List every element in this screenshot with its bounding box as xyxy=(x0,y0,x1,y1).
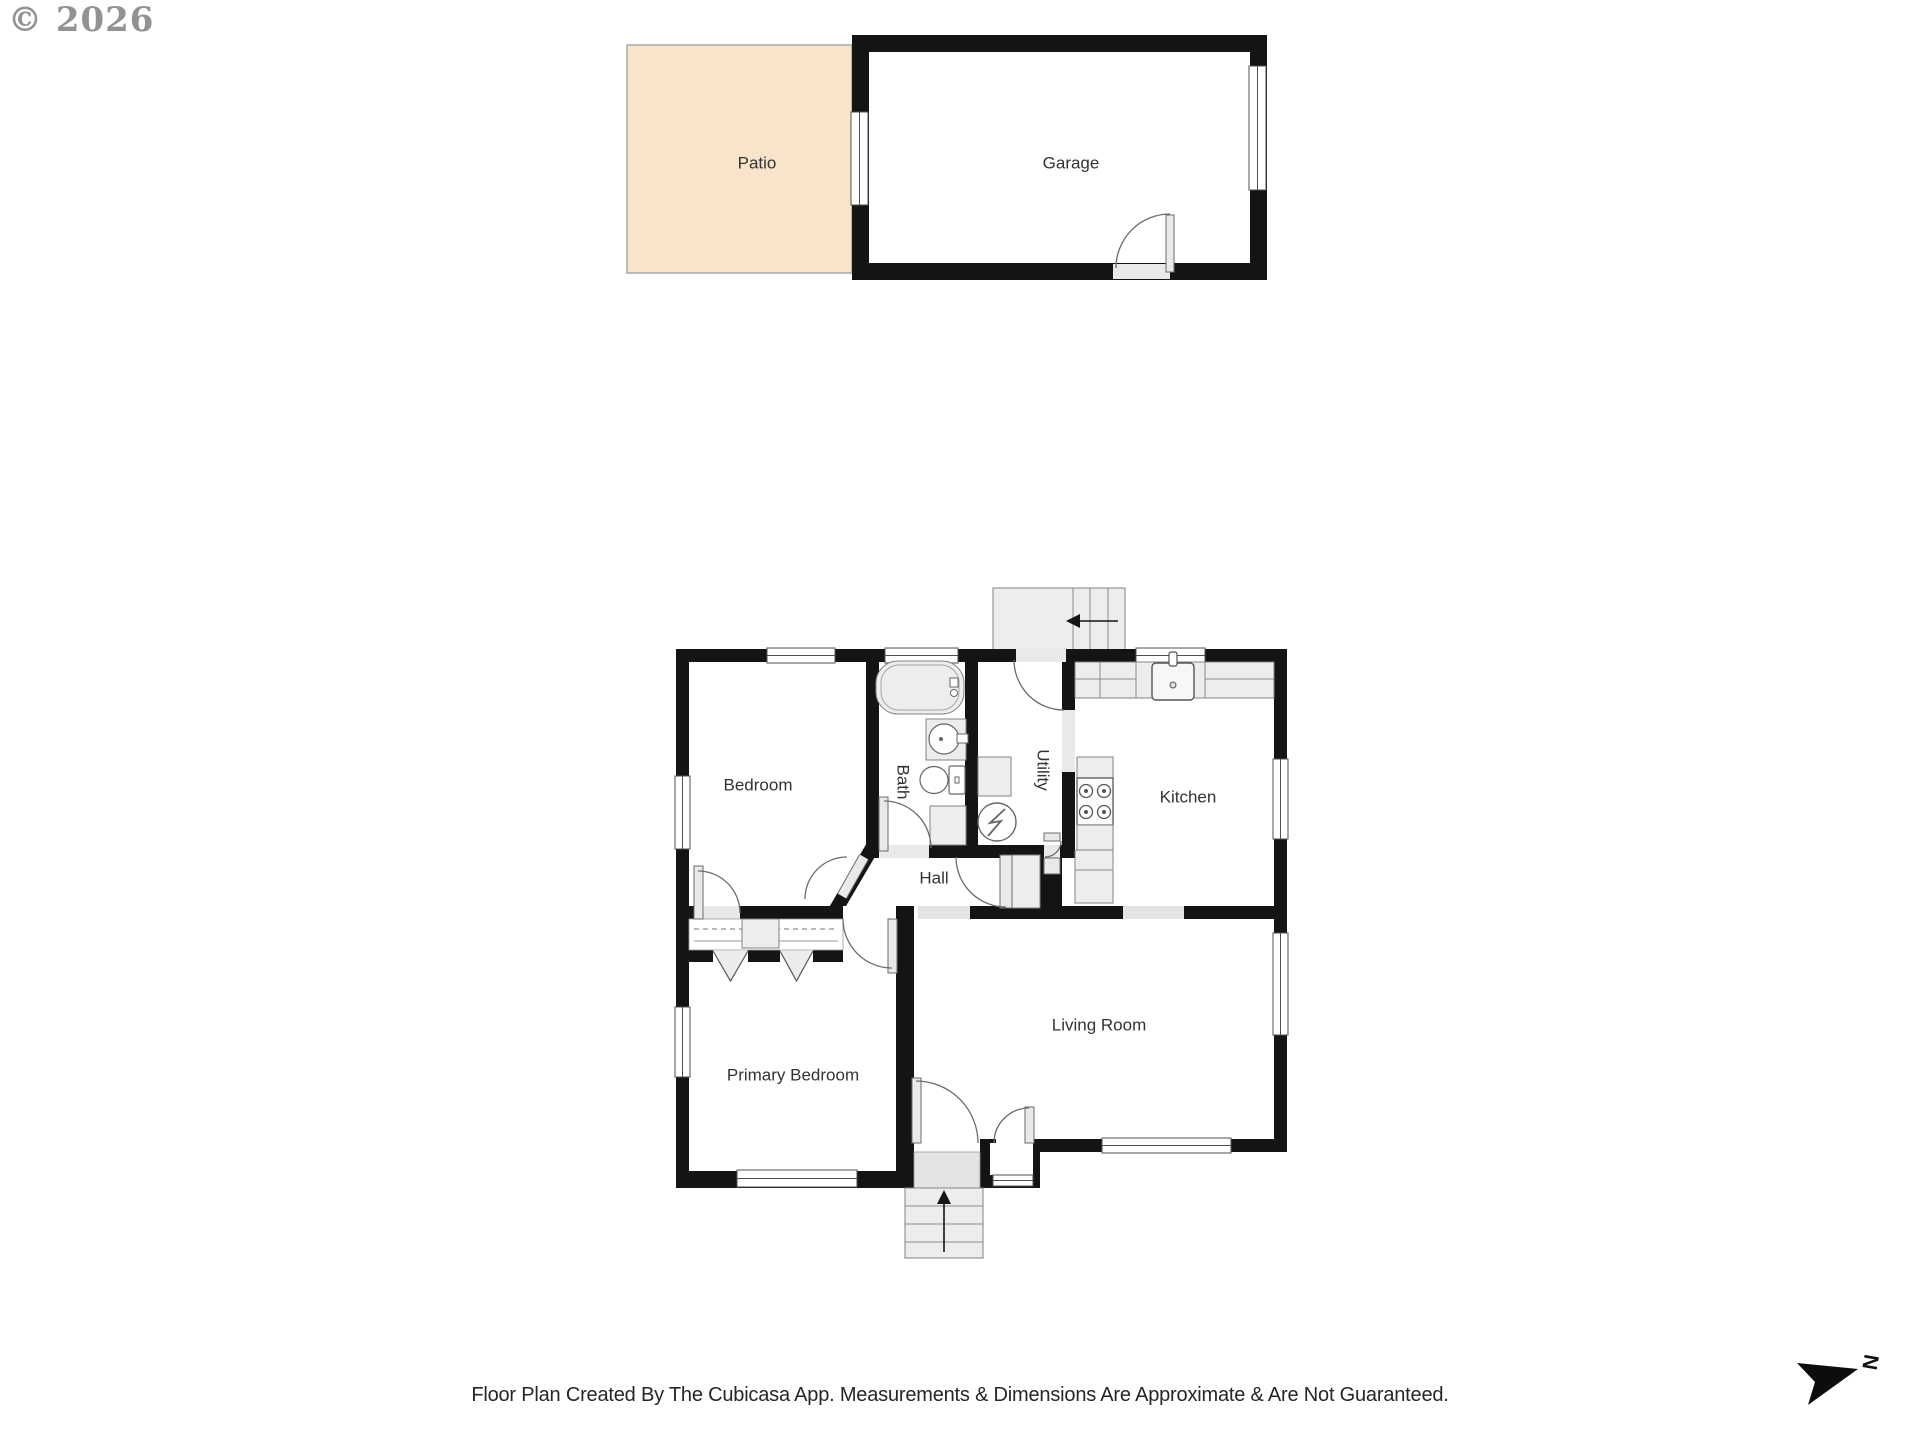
front-door-swing xyxy=(912,1078,978,1143)
closet-shelf xyxy=(742,919,779,948)
window xyxy=(1249,66,1266,190)
kitchen-counter xyxy=(1077,825,1113,850)
entry-closet-door-swing xyxy=(994,1107,1034,1143)
bedroom-label: Bedroom xyxy=(724,775,793,794)
primary-bedroom-label: Primary Bedroom xyxy=(727,1065,859,1084)
kitchen-label: Kitchen xyxy=(1160,787,1217,806)
disclaimer-text: Floor Plan Created By The Cubicasa App. … xyxy=(0,1384,1920,1407)
kitchen-living-opening xyxy=(1123,906,1184,919)
garage-label: Garage xyxy=(1043,153,1100,172)
bedroom-angled-door-swing xyxy=(805,857,864,899)
living-room-label: Living Room xyxy=(1052,1015,1147,1034)
utility-back-door-swing xyxy=(1014,660,1064,710)
window xyxy=(737,1170,857,1187)
window xyxy=(1102,1138,1231,1153)
bifold-door-icon xyxy=(780,951,813,981)
back-stairs-up xyxy=(993,588,1125,650)
window xyxy=(1273,933,1288,1035)
window xyxy=(675,776,690,849)
basement-stairs xyxy=(1012,855,1040,908)
window xyxy=(675,1007,690,1077)
window xyxy=(1273,759,1288,839)
floor-plan-page: © 2026 xyxy=(0,0,1920,1440)
water-heater-icon xyxy=(978,803,1016,841)
bath-door-swing xyxy=(879,797,931,851)
entry-landing xyxy=(914,1152,980,1188)
bedroom-closet xyxy=(689,919,843,981)
bathroom-sink-icon xyxy=(926,719,968,760)
window xyxy=(767,648,835,663)
utility-appliance xyxy=(978,757,1011,796)
utility-kitchen-opening xyxy=(1062,710,1075,772)
stove-icon xyxy=(1077,778,1113,825)
utility-label: Utility xyxy=(1034,749,1053,791)
primary-bedroom-door-swing xyxy=(843,919,897,973)
bath-cabinet xyxy=(930,806,966,845)
window xyxy=(851,112,868,205)
bathtub-icon xyxy=(876,661,964,714)
toilet-icon xyxy=(920,766,965,794)
refrigerator xyxy=(1075,850,1113,903)
floor-plan-drawing: Patio Garage Bedroom Bath Utility Kitche… xyxy=(0,0,1920,1440)
patio-label: Patio xyxy=(738,153,777,172)
basement-door-swing xyxy=(956,855,1012,908)
entry-closet xyxy=(990,1143,1033,1186)
entry-stairs xyxy=(905,1152,983,1258)
hall-living-opening xyxy=(918,906,970,919)
window xyxy=(993,1175,1033,1186)
hall-label: Hall xyxy=(919,868,948,887)
kitchen-counter xyxy=(1077,757,1113,778)
north-letter: N xyxy=(1857,1353,1882,1372)
bifold-door-icon xyxy=(713,951,748,981)
bath-label: Bath xyxy=(894,765,913,800)
